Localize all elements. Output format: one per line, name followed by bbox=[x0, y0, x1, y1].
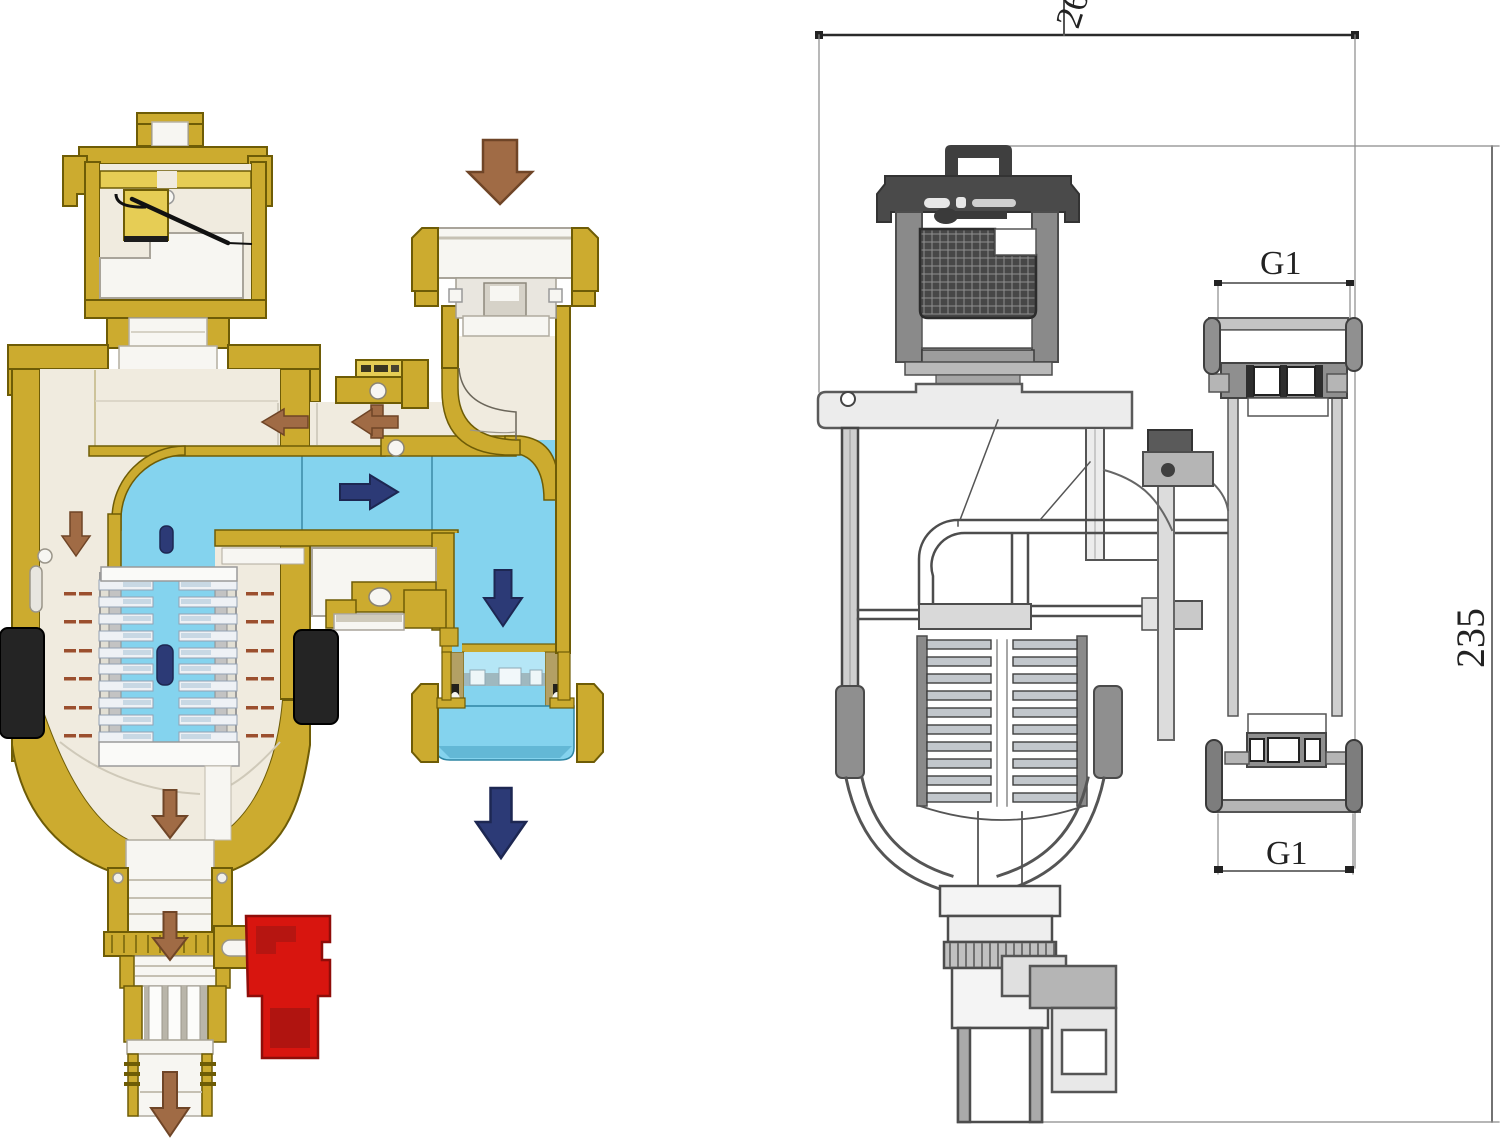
svg-text:G1: G1 bbox=[1266, 835, 1308, 872]
svg-text:235: 235 bbox=[1448, 608, 1493, 668]
svg-text:G1: G1 bbox=[1260, 245, 1302, 282]
